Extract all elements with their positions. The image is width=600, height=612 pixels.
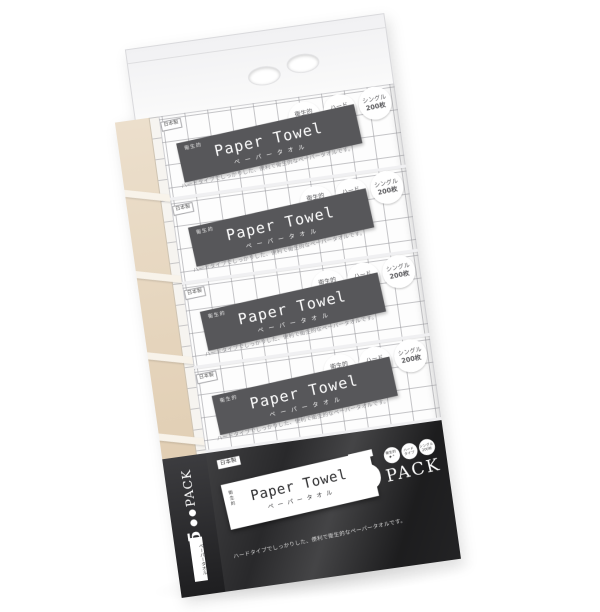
mini-badge-hygienic: 衛生的 ✦⁺ (381, 446, 400, 465)
made-in-japan-tab: 日本製 (172, 202, 195, 216)
hang-hole-left (248, 65, 281, 86)
badge-sheet-count: シングル 200枚 (356, 84, 395, 123)
side-badge-dot-icon (188, 509, 196, 517)
pack-label: 衛生的 Paper Towel ペーパータオル (176, 104, 362, 182)
side-pack-unit: PACK (179, 468, 198, 507)
mini-badge-hard-type: ハード タイプ (399, 442, 418, 461)
side-badge-dot-icon (189, 519, 197, 527)
mini-badge-sheet-count: シングル 200枚 (416, 438, 435, 457)
hang-hole-right (286, 53, 319, 74)
made-in-japan-tab: 日本製 (160, 118, 183, 132)
package-body: 5 PACK ペーパータオル 日本製 衛生的 ✦⁺ ハ (115, 83, 461, 598)
badge-sheet-count: シングル 200枚 (379, 252, 418, 291)
made-in-japan-tab: 日本製 (184, 286, 207, 300)
badge-sheet-count: シングル 200枚 (391, 336, 430, 375)
flap-crease-line (128, 27, 386, 64)
sparkle-icon: ✦⁺ (388, 454, 396, 460)
side-five-pack-text: 5 PACK (176, 468, 206, 544)
made-in-japan-tab: 日本製 (195, 370, 218, 384)
pack-label: 衛生的 Paper Towel ペーパータオル (212, 357, 398, 435)
pack-label: 衛生的 Paper Towel ペーパータオル (188, 188, 374, 266)
pack-label: 衛生的 Paper Towel ペーパータオル (200, 272, 386, 350)
paper-towel-package: 5 PACK ペーパータオル 日本製 衛生的 ✦⁺ ハ (105, 13, 461, 598)
badge-sheet-count: シングル 200枚 (367, 168, 406, 207)
side-tag: ペーパータオル (189, 537, 208, 582)
